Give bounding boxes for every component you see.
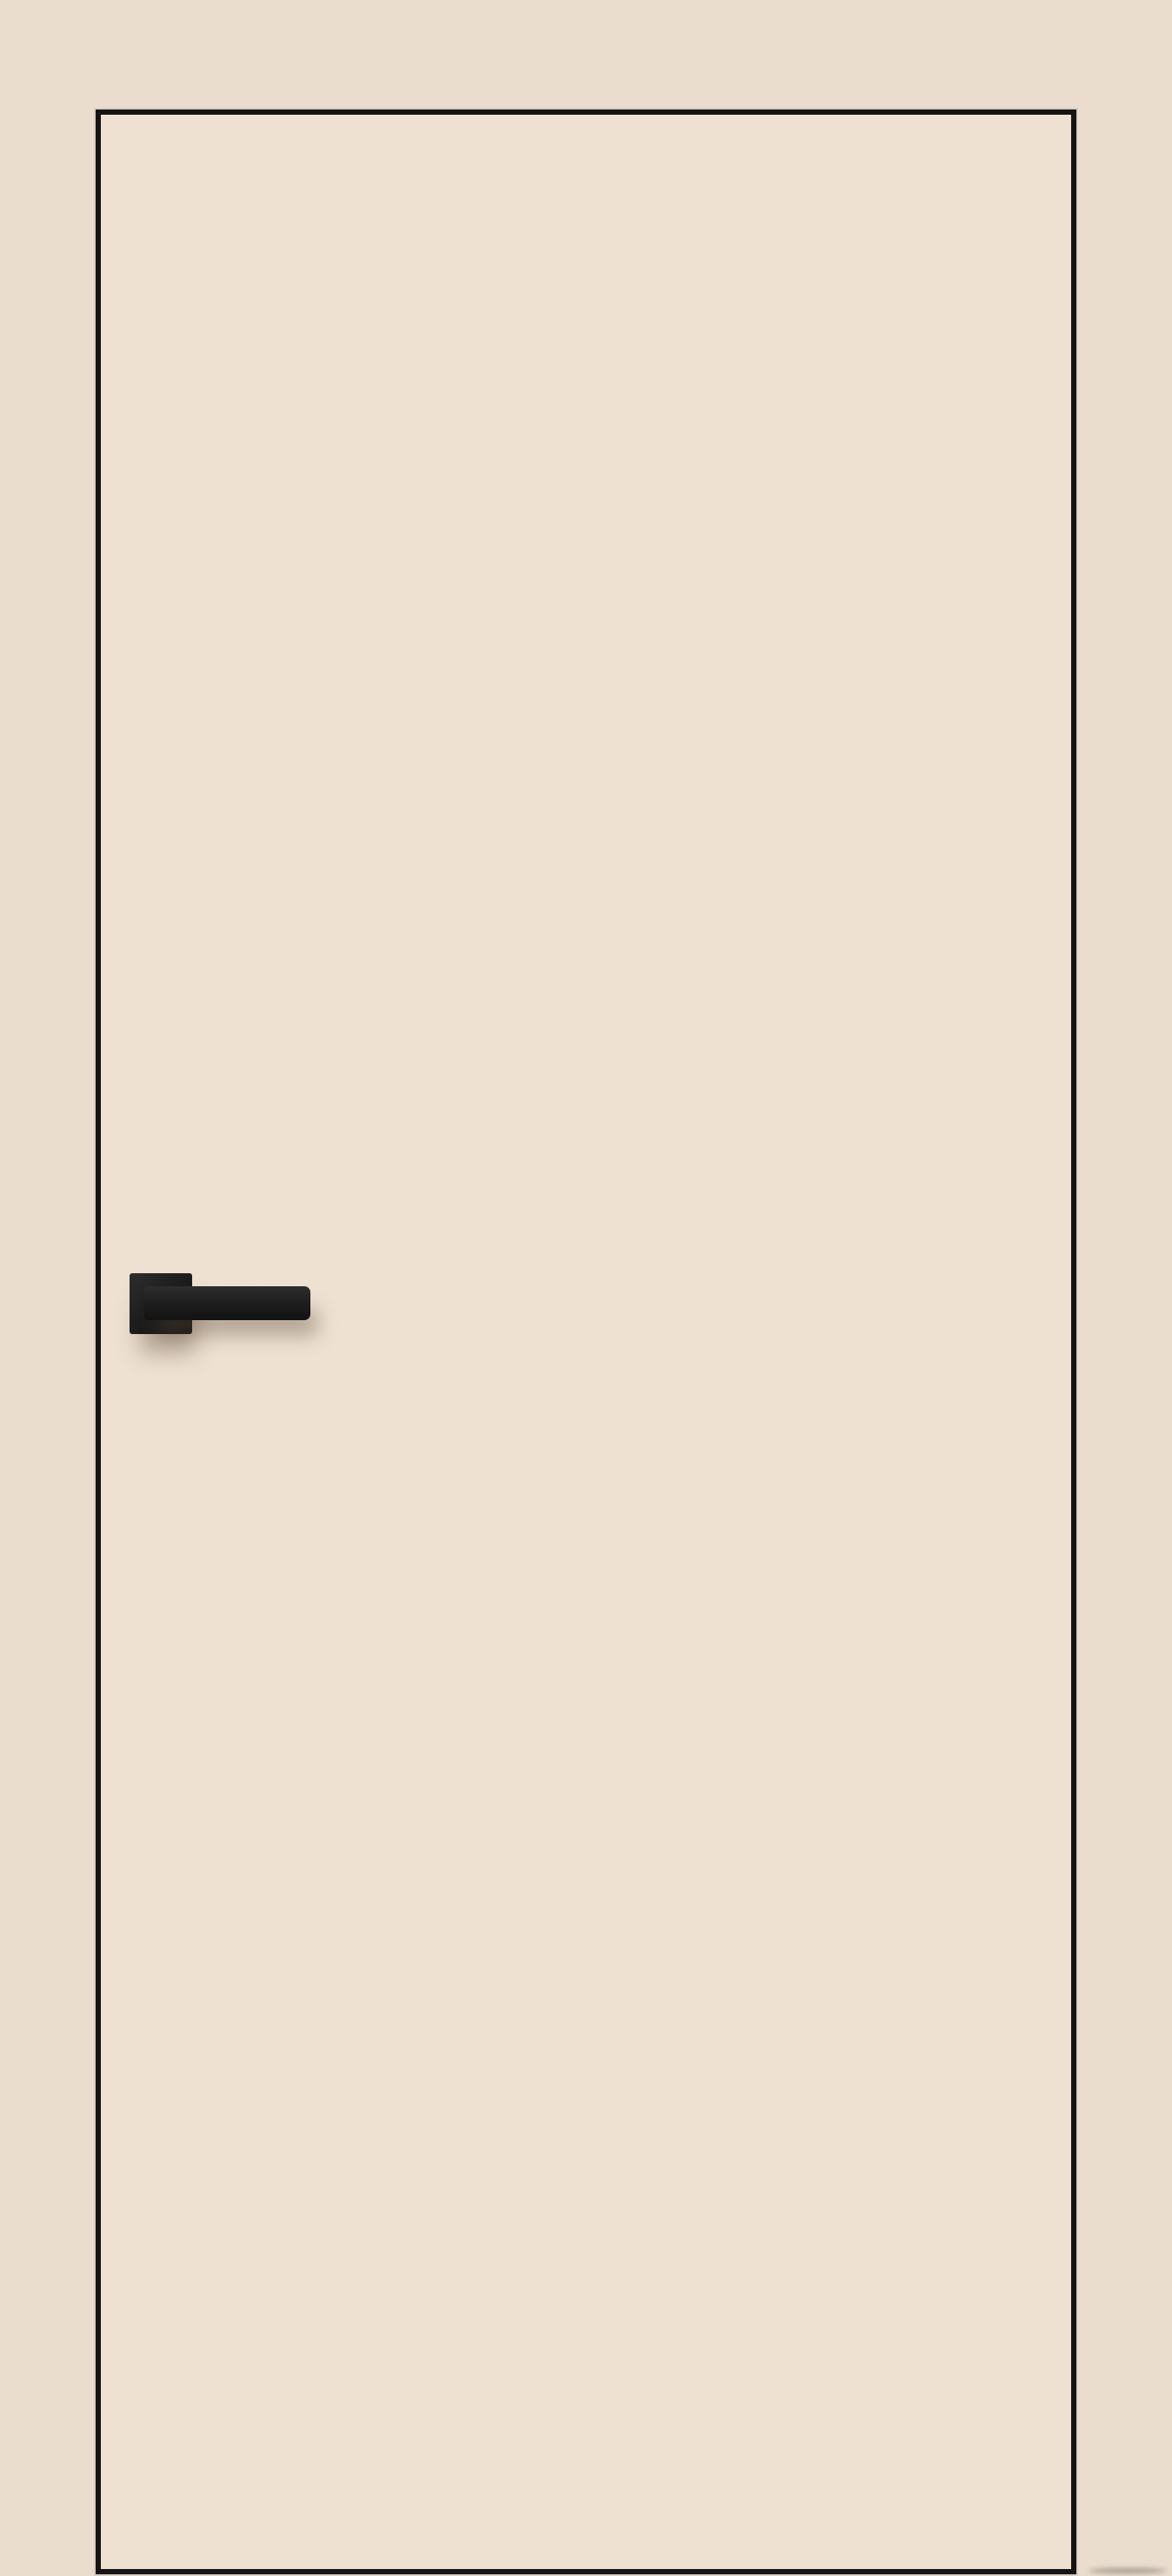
door-handle bbox=[130, 1273, 311, 1334]
scene-background bbox=[0, 0, 1172, 2576]
door-panel bbox=[96, 110, 1076, 2574]
handle-lever bbox=[144, 1286, 310, 1320]
floor-shadow bbox=[1089, 2568, 1167, 2573]
